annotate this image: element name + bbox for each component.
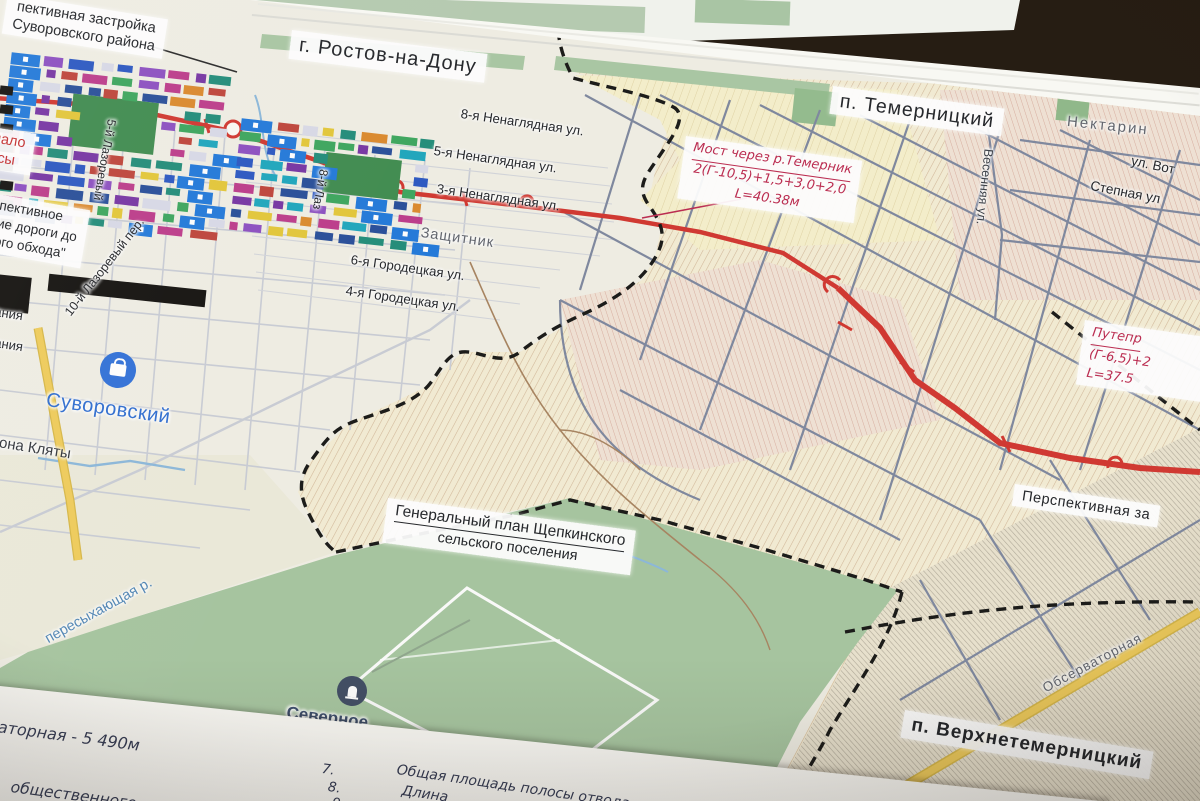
building-block xyxy=(47,148,69,159)
building-block xyxy=(272,200,283,210)
building-block xyxy=(210,127,228,138)
building-block xyxy=(168,70,189,81)
building-block xyxy=(277,214,298,223)
building-block xyxy=(170,96,196,108)
building-block xyxy=(342,221,366,231)
plan-edge-tick xyxy=(0,104,13,114)
building-block xyxy=(208,75,231,87)
building-block xyxy=(81,73,107,85)
building-block xyxy=(239,131,261,143)
building-block xyxy=(247,211,271,222)
building-block xyxy=(231,209,242,218)
building-block xyxy=(161,122,176,132)
building-block xyxy=(122,91,138,101)
building-block xyxy=(196,73,206,83)
building-block xyxy=(361,132,387,144)
building-block xyxy=(14,183,27,192)
building-block xyxy=(57,97,71,107)
building-block xyxy=(177,176,205,191)
building-block xyxy=(162,213,175,223)
building-block xyxy=(333,207,357,217)
building-block xyxy=(179,215,205,230)
building-block xyxy=(313,140,336,152)
building-block xyxy=(130,157,151,168)
building-block xyxy=(158,226,183,236)
building-block xyxy=(369,224,387,234)
building-block xyxy=(318,219,340,230)
building-block xyxy=(73,151,99,162)
back-sheet-map-fragment xyxy=(695,0,791,26)
building-block xyxy=(208,179,228,191)
building-block xyxy=(267,226,284,237)
building-block xyxy=(112,77,132,87)
building-block xyxy=(372,146,393,156)
building-block xyxy=(40,82,61,93)
building-block xyxy=(326,193,350,205)
building-block xyxy=(413,177,429,187)
building-block xyxy=(164,174,175,183)
building-block xyxy=(107,220,122,229)
building-block xyxy=(179,124,205,135)
building-block xyxy=(233,183,254,195)
building-block xyxy=(313,153,328,164)
building-block xyxy=(179,137,192,146)
building-block xyxy=(208,88,226,97)
building-block xyxy=(390,240,407,251)
building-block xyxy=(282,175,297,184)
building-block xyxy=(35,107,51,116)
building-block xyxy=(208,219,226,228)
building-block xyxy=(259,186,275,197)
building-block xyxy=(286,163,307,174)
building-block xyxy=(238,144,261,155)
building-block xyxy=(114,195,139,206)
building-block xyxy=(47,69,57,78)
building-block xyxy=(278,122,300,132)
building-block xyxy=(55,110,80,120)
building-block xyxy=(190,230,218,241)
building-block xyxy=(300,217,312,227)
building-block xyxy=(101,63,114,72)
building-block xyxy=(229,222,238,231)
building-block xyxy=(198,139,218,148)
route-start-label: нало ссы xyxy=(0,126,36,175)
building-block xyxy=(287,202,304,212)
building-block xyxy=(33,146,44,155)
building-block xyxy=(340,130,357,141)
building-block xyxy=(420,139,435,150)
building-block xyxy=(118,182,135,191)
building-block xyxy=(184,111,201,121)
building-block xyxy=(356,197,387,212)
building-block xyxy=(68,59,94,72)
building-block xyxy=(287,228,308,238)
building-block xyxy=(86,218,104,227)
building-block xyxy=(140,172,159,181)
building-block xyxy=(280,188,307,199)
building-block xyxy=(402,189,416,199)
building-block xyxy=(232,196,252,206)
notes-item-num: 9. xyxy=(331,795,346,801)
route-start-line1: нало xyxy=(0,130,27,151)
building-block xyxy=(399,149,426,161)
building-block xyxy=(176,202,188,212)
building-block xyxy=(142,198,171,211)
development-blocks-cluster xyxy=(227,116,437,256)
building-block xyxy=(139,80,160,90)
building-block xyxy=(357,145,369,155)
building-block xyxy=(261,173,278,182)
building-block xyxy=(61,71,77,81)
building-block xyxy=(266,147,275,155)
building-block xyxy=(260,160,284,172)
building-block xyxy=(235,170,255,180)
building-block xyxy=(29,172,53,182)
plan-edge-tick xyxy=(0,85,13,95)
building-block xyxy=(189,151,207,161)
building-block xyxy=(38,121,59,132)
building-block xyxy=(139,67,166,79)
building-block xyxy=(322,127,334,136)
building-block xyxy=(187,190,213,205)
building-block xyxy=(108,168,135,179)
building-block xyxy=(199,100,224,111)
building-block xyxy=(254,198,269,208)
building-block xyxy=(170,149,185,158)
building-block xyxy=(393,201,407,211)
notes-item-num: 7. xyxy=(321,761,336,780)
building-block xyxy=(390,135,417,146)
building-block xyxy=(398,215,423,225)
building-block xyxy=(166,188,181,197)
building-block xyxy=(414,164,429,174)
building-block xyxy=(155,160,182,171)
building-block xyxy=(358,236,384,246)
building-block xyxy=(184,85,205,96)
plan-edge-tick xyxy=(0,180,13,190)
building-block xyxy=(31,185,50,197)
building-block xyxy=(243,223,262,233)
notes-measure-line: ваторная - 5 490м xyxy=(0,716,141,756)
building-block xyxy=(302,125,318,137)
overpass-line3: L=37.5 xyxy=(1086,366,1135,387)
photo-of-map: пективная застройка Суворовского района … xyxy=(0,0,1200,801)
building-block xyxy=(112,208,123,219)
building-block xyxy=(339,234,356,244)
building-block xyxy=(140,185,163,196)
building-block xyxy=(412,203,421,213)
building-block xyxy=(164,83,181,93)
building-block xyxy=(55,188,84,201)
building-block xyxy=(314,231,333,241)
building-block xyxy=(57,175,84,187)
building-block xyxy=(74,164,85,174)
building-block xyxy=(44,161,70,173)
building-block xyxy=(44,56,64,68)
building-block xyxy=(97,206,109,216)
building-block xyxy=(57,136,72,147)
building-block xyxy=(236,157,253,168)
route-start-line2: ссы xyxy=(0,149,16,169)
building-block xyxy=(205,114,221,125)
notes-bottom-line: общественного наз xyxy=(9,778,170,801)
map-sheet: пективная застройка Суворовского района … xyxy=(0,0,1200,801)
building-block xyxy=(301,138,310,147)
building-block xyxy=(88,87,101,96)
building-block xyxy=(103,89,118,100)
building-block xyxy=(338,142,355,151)
building-block xyxy=(64,84,82,94)
building-block xyxy=(117,64,133,73)
building-block xyxy=(41,95,50,104)
